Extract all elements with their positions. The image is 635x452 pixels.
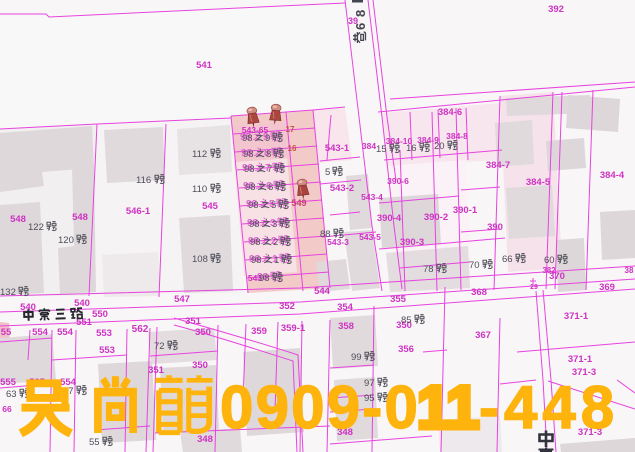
svg-text:98: 98 <box>250 237 261 248</box>
svg-text:390-3: 390-3 <box>400 237 424 248</box>
svg-text:55: 55 <box>89 437 100 448</box>
svg-text:352: 352 <box>279 301 295 312</box>
svg-text:72: 72 <box>154 341 165 352</box>
svg-text:550: 550 <box>92 309 108 320</box>
svg-text:0909-0: 0909-0 <box>220 374 420 441</box>
svg-text:384-7: 384-7 <box>486 160 510 171</box>
svg-text:382: 382 <box>542 266 556 275</box>
svg-text:553: 553 <box>96 328 112 339</box>
svg-text:5: 5 <box>325 167 330 178</box>
svg-text:368: 368 <box>471 287 487 298</box>
svg-text:6: 6 <box>268 182 273 193</box>
svg-text:549: 549 <box>291 198 306 208</box>
svg-text:1: 1 <box>446 374 479 441</box>
svg-text:2: 2 <box>273 237 278 248</box>
svg-text:5: 5 <box>271 200 276 211</box>
svg-text:38: 38 <box>625 266 634 275</box>
svg-text:98: 98 <box>243 149 254 160</box>
svg-text:554: 554 <box>32 327 49 338</box>
svg-text:98: 98 <box>249 219 260 230</box>
svg-text:390-4: 390-4 <box>377 213 402 224</box>
svg-text:8: 8 <box>266 149 271 160</box>
svg-text:1: 1 <box>274 255 279 266</box>
svg-text:384-8: 384-8 <box>446 131 468 141</box>
svg-text:390-2: 390-2 <box>424 212 448 223</box>
svg-text:371-1: 371-1 <box>568 354 593 365</box>
svg-text:547: 547 <box>174 294 190 305</box>
svg-text:562: 562 <box>132 324 149 335</box>
svg-text:88: 88 <box>320 229 331 240</box>
svg-text:351: 351 <box>185 316 202 327</box>
svg-text:132: 132 <box>0 287 16 298</box>
svg-text:540: 540 <box>74 298 90 309</box>
svg-text:63: 63 <box>6 389 17 400</box>
svg-text:16: 16 <box>288 144 297 153</box>
svg-text:371-1: 371-1 <box>564 311 589 322</box>
svg-text:122: 122 <box>28 222 44 233</box>
svg-text:66: 66 <box>2 404 12 414</box>
svg-text:99: 99 <box>351 352 362 363</box>
svg-text:110: 110 <box>192 184 207 195</box>
svg-text:355: 355 <box>390 294 407 305</box>
svg-text:553: 553 <box>99 345 115 356</box>
svg-text:543-5: 543-5 <box>359 232 381 242</box>
svg-text:392: 392 <box>548 4 564 15</box>
svg-text:544: 544 <box>314 286 331 297</box>
svg-text:55: 55 <box>1 327 12 338</box>
svg-text:112: 112 <box>192 149 207 160</box>
svg-text:17: 17 <box>286 125 295 134</box>
svg-text:78: 78 <box>423 264 434 275</box>
svg-text:15: 15 <box>376 144 387 155</box>
svg-text:39: 39 <box>348 16 358 26</box>
svg-text:554: 554 <box>57 327 74 338</box>
svg-text:543-4: 543-4 <box>361 192 383 202</box>
svg-text:555: 555 <box>0 377 17 388</box>
svg-text:120: 120 <box>58 235 74 246</box>
svg-text:369: 369 <box>599 282 615 293</box>
svg-text:85: 85 <box>401 315 412 326</box>
svg-text:7: 7 <box>267 164 272 175</box>
svg-text:108: 108 <box>192 254 208 265</box>
svg-text:384: 384 <box>362 141 376 151</box>
svg-text:548: 548 <box>72 212 88 223</box>
svg-text:351: 351 <box>148 365 165 376</box>
svg-text:543-1: 543-1 <box>325 143 350 154</box>
svg-text:20: 20 <box>434 141 445 152</box>
svg-text:348: 348 <box>197 434 213 445</box>
svg-text:545: 545 <box>202 201 219 212</box>
svg-text:66: 66 <box>502 254 513 265</box>
svg-text:16: 16 <box>406 143 417 154</box>
svg-text:70: 70 <box>469 260 480 271</box>
svg-text:543-2: 543-2 <box>330 183 354 194</box>
svg-text:546-1: 546-1 <box>126 206 151 217</box>
svg-text:390: 390 <box>487 222 503 233</box>
svg-text:98: 98 <box>251 255 262 266</box>
svg-text:367: 367 <box>475 330 491 341</box>
svg-text:358: 358 <box>338 321 354 332</box>
svg-text:356: 356 <box>398 344 414 355</box>
svg-text:98: 98 <box>242 133 253 144</box>
svg-text:98: 98 <box>248 200 259 211</box>
svg-text:390-1: 390-1 <box>453 205 478 216</box>
svg-text:384-6: 384-6 <box>438 107 462 118</box>
svg-text:98: 98 <box>259 273 270 284</box>
svg-text:98: 98 <box>244 164 255 175</box>
svg-text:384-5: 384-5 <box>526 177 551 188</box>
svg-text:359-1: 359-1 <box>281 323 306 334</box>
svg-text:350: 350 <box>195 327 211 338</box>
svg-text:354: 354 <box>337 302 354 313</box>
svg-text:384-4: 384-4 <box>600 170 625 181</box>
svg-text:116: 116 <box>136 175 151 186</box>
svg-text:29: 29 <box>530 284 538 291</box>
svg-text:350: 350 <box>192 360 208 371</box>
svg-text:359: 359 <box>251 326 267 337</box>
svg-text:390-6: 390-6 <box>387 176 409 186</box>
svg-text:-448: -448 <box>479 374 619 441</box>
svg-text:60: 60 <box>544 255 555 266</box>
svg-text:3: 3 <box>272 219 277 230</box>
svg-text:9: 9 <box>265 133 270 144</box>
svg-text:541: 541 <box>196 60 213 71</box>
svg-text:98: 98 <box>245 182 256 193</box>
svg-text:548: 548 <box>10 214 26 225</box>
